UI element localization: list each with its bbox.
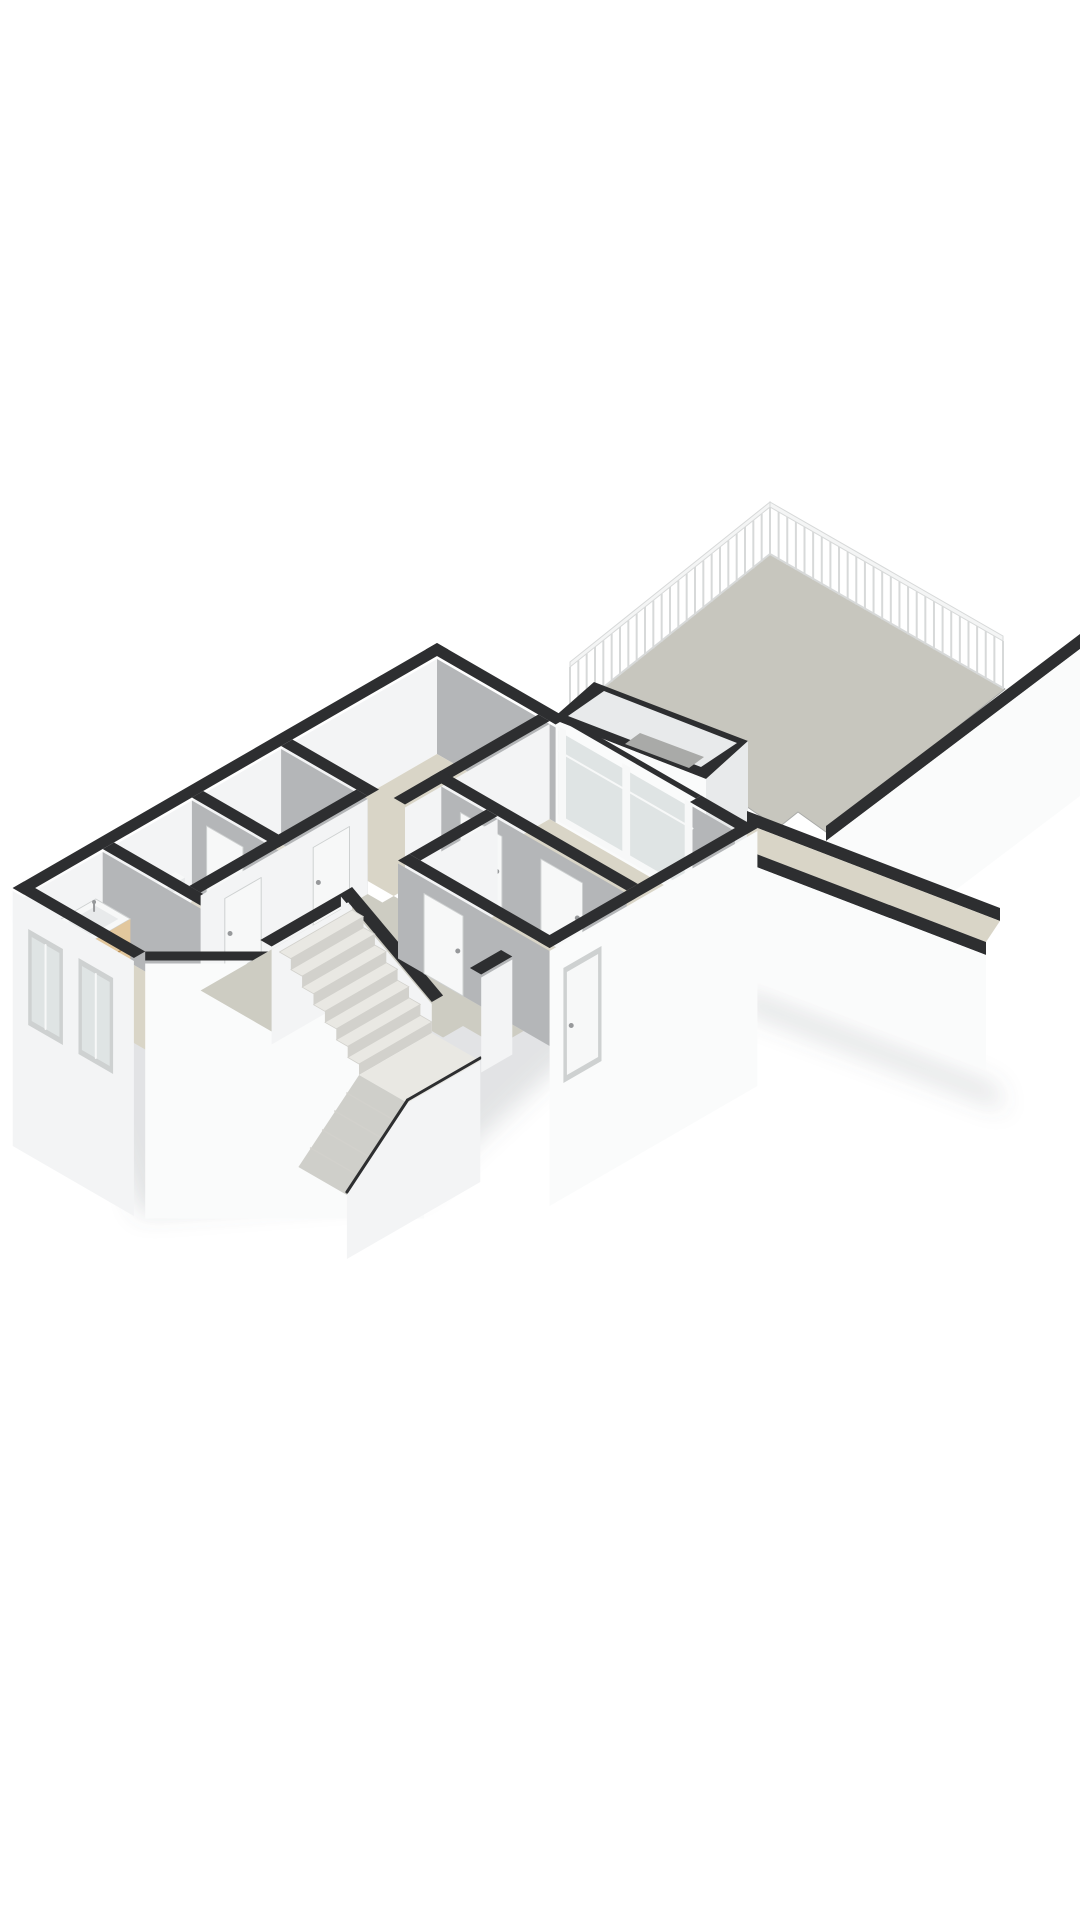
terrace-window-post-2 (622, 763, 630, 863)
entry-door-panel (567, 954, 598, 1075)
door-handle (228, 931, 233, 936)
floorplan-svg (0, 0, 1080, 1920)
floorplan-3d-render (0, 0, 1080, 1920)
door-handle (569, 1023, 574, 1028)
porch-jog-face (481, 960, 512, 1073)
floorplan-page (0, 0, 1080, 1920)
door-handle (455, 949, 460, 954)
sink-faucet-head (92, 900, 96, 904)
terrace-window-post-1 (558, 726, 566, 826)
door-handle (316, 880, 321, 885)
